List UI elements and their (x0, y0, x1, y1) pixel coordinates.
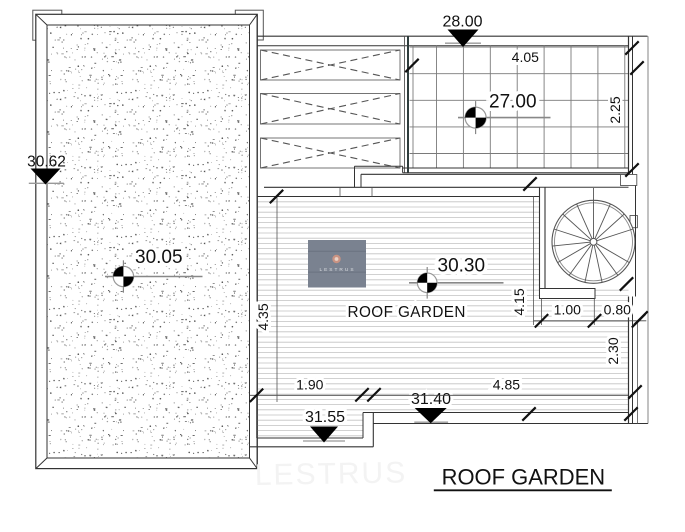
svg-text:4.85: 4.85 (493, 377, 520, 393)
svg-text:ROOF GARDEN: ROOF GARDEN (348, 304, 466, 321)
svg-text:ROOF GARDEN: ROOF GARDEN (442, 464, 605, 489)
svg-text:LESTRUS: LESTRUS (319, 267, 355, 273)
svg-text:4.05: 4.05 (512, 49, 539, 65)
svg-text:4.35: 4.35 (255, 303, 271, 330)
svg-text:2.30: 2.30 (605, 337, 621, 364)
svg-text:1.00: 1.00 (554, 302, 581, 318)
svg-text:27.00: 27.00 (489, 92, 537, 113)
svg-text:28.00: 28.00 (442, 14, 482, 31)
svg-text:30.30: 30.30 (438, 256, 486, 277)
svg-text:0.80: 0.80 (604, 302, 631, 318)
svg-text:4.15: 4.15 (511, 288, 527, 315)
svg-text:30.62: 30.62 (27, 154, 66, 171)
svg-text:2.25: 2.25 (607, 96, 623, 123)
svg-text:1.90: 1.90 (296, 377, 323, 393)
svg-text:31.55: 31.55 (305, 409, 345, 426)
svg-text:30.05: 30.05 (135, 247, 183, 268)
svg-text:31.40: 31.40 (411, 391, 451, 408)
svg-text:LΕSTRUS: LΕSTRUS (255, 456, 408, 492)
